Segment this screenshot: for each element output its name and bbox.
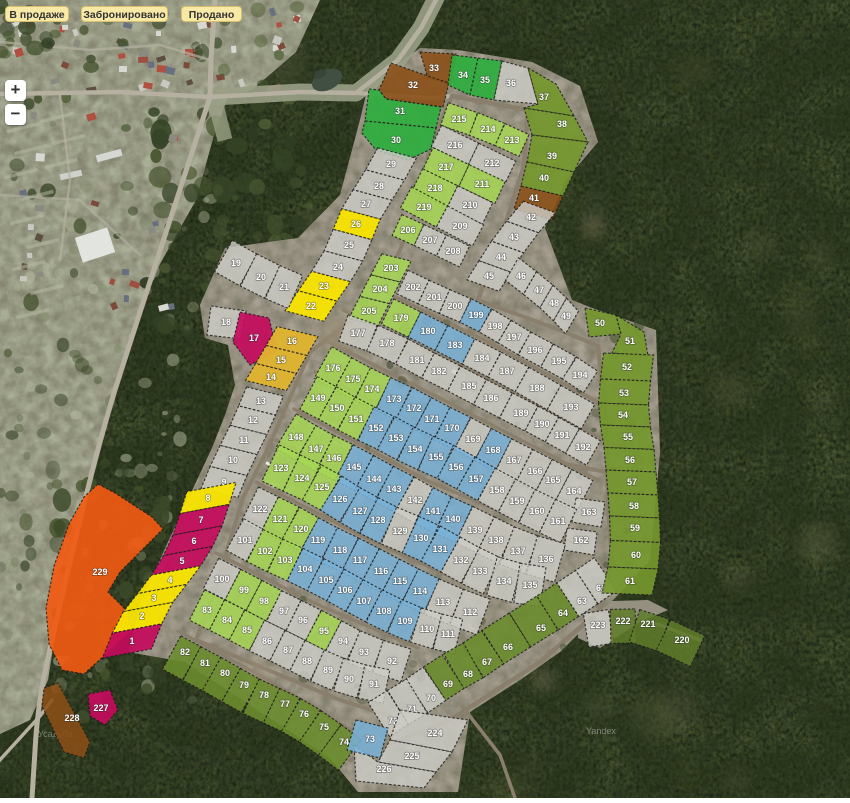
svg-text:51: 51 bbox=[625, 336, 635, 346]
svg-text:209: 209 bbox=[452, 221, 467, 231]
svg-text:74: 74 bbox=[339, 737, 349, 747]
svg-text:144: 144 bbox=[366, 474, 381, 484]
svg-text:30: 30 bbox=[391, 135, 401, 145]
svg-text:183: 183 bbox=[447, 340, 462, 350]
svg-text:92: 92 bbox=[387, 656, 397, 666]
svg-text:122: 122 bbox=[252, 504, 267, 514]
svg-text:223: 223 bbox=[590, 620, 605, 630]
svg-text:73: 73 bbox=[365, 734, 375, 744]
svg-text:49: 49 bbox=[561, 311, 571, 321]
svg-text:94: 94 bbox=[338, 636, 348, 646]
svg-text:28: 28 bbox=[374, 181, 384, 191]
svg-text:139: 139 bbox=[467, 525, 482, 535]
svg-text:134: 134 bbox=[496, 576, 511, 586]
svg-text:191: 191 bbox=[554, 430, 569, 440]
svg-text:53: 53 bbox=[619, 388, 629, 398]
svg-text:212: 212 bbox=[484, 158, 499, 168]
svg-text:172: 172 bbox=[406, 403, 421, 413]
svg-text:176: 176 bbox=[325, 363, 340, 373]
svg-text:17: 17 bbox=[249, 333, 259, 343]
svg-text:127: 127 bbox=[352, 506, 367, 516]
svg-text:165: 165 bbox=[545, 475, 560, 485]
svg-text:77: 77 bbox=[280, 699, 290, 709]
svg-text:98: 98 bbox=[259, 596, 269, 606]
svg-text:69: 69 bbox=[443, 679, 453, 689]
svg-text:110: 110 bbox=[420, 624, 435, 634]
svg-text:164: 164 bbox=[566, 486, 581, 496]
svg-text:214: 214 bbox=[480, 124, 495, 134]
svg-text:131: 131 bbox=[432, 544, 447, 554]
svg-text:6: 6 bbox=[191, 536, 196, 546]
svg-text:168: 168 bbox=[485, 445, 500, 455]
svg-text:152: 152 bbox=[368, 423, 383, 433]
svg-text:136: 136 bbox=[538, 554, 553, 564]
svg-text:203: 203 bbox=[383, 263, 398, 273]
svg-text:21: 21 bbox=[279, 282, 289, 292]
svg-text:99: 99 bbox=[239, 585, 249, 595]
svg-text:133: 133 bbox=[472, 566, 487, 576]
svg-text:75: 75 bbox=[319, 722, 329, 732]
svg-text:128: 128 bbox=[370, 515, 385, 525]
svg-text:219: 219 bbox=[416, 202, 431, 212]
svg-text:80: 80 bbox=[220, 668, 230, 678]
svg-text:129: 129 bbox=[392, 526, 407, 536]
svg-text:18: 18 bbox=[221, 317, 231, 327]
svg-text:37: 37 bbox=[539, 92, 549, 102]
svg-text:188: 188 bbox=[529, 383, 544, 393]
svg-text:39: 39 bbox=[547, 151, 557, 161]
svg-text:34: 34 bbox=[458, 70, 468, 80]
svg-text:58: 58 bbox=[629, 501, 639, 511]
svg-text:100: 100 bbox=[214, 574, 229, 584]
svg-text:15: 15 bbox=[276, 355, 286, 365]
svg-text:211: 211 bbox=[475, 179, 490, 189]
svg-text:178: 178 bbox=[379, 338, 394, 348]
svg-text:197: 197 bbox=[506, 332, 521, 342]
svg-text:153: 153 bbox=[388, 433, 403, 443]
svg-text:175: 175 bbox=[345, 374, 360, 384]
svg-text:54: 54 bbox=[618, 410, 628, 420]
svg-text:184: 184 bbox=[474, 353, 489, 363]
svg-text:23: 23 bbox=[319, 281, 329, 291]
svg-text:215: 215 bbox=[451, 114, 466, 124]
svg-text:156: 156 bbox=[448, 462, 463, 472]
svg-text:169: 169 bbox=[465, 434, 480, 444]
svg-text:76: 76 bbox=[299, 709, 309, 719]
svg-text:208: 208 bbox=[445, 246, 460, 256]
svg-text:121: 121 bbox=[272, 514, 287, 524]
svg-text:43: 43 bbox=[509, 232, 519, 242]
svg-text:185: 185 bbox=[461, 381, 476, 391]
svg-text:222: 222 bbox=[615, 616, 630, 626]
svg-text:123: 123 bbox=[273, 463, 288, 473]
svg-text:132: 132 bbox=[453, 555, 468, 565]
svg-text:95: 95 bbox=[319, 626, 329, 636]
svg-text:138: 138 bbox=[488, 535, 503, 545]
svg-text:104: 104 bbox=[297, 564, 312, 574]
svg-text:224: 224 bbox=[427, 728, 442, 738]
svg-text:111: 111 bbox=[441, 629, 455, 639]
svg-text:179: 179 bbox=[393, 313, 408, 323]
svg-text:106: 106 bbox=[337, 585, 352, 595]
svg-text:162: 162 bbox=[573, 535, 588, 545]
svg-text:93: 93 bbox=[359, 647, 369, 657]
svg-text:24: 24 bbox=[333, 262, 343, 272]
svg-text:228: 228 bbox=[64, 713, 79, 723]
svg-text:186: 186 bbox=[483, 393, 498, 403]
svg-text:109: 109 bbox=[397, 616, 412, 626]
svg-text:85: 85 bbox=[242, 625, 252, 635]
svg-text:116: 116 bbox=[374, 566, 389, 576]
svg-text:182: 182 bbox=[431, 366, 446, 376]
svg-text:114: 114 bbox=[413, 586, 428, 596]
svg-text:181: 181 bbox=[409, 355, 424, 365]
svg-text:213: 213 bbox=[504, 135, 519, 145]
svg-text:90: 90 bbox=[344, 674, 354, 684]
svg-text:159: 159 bbox=[509, 496, 524, 506]
svg-text:207: 207 bbox=[422, 235, 437, 245]
svg-text:229: 229 bbox=[92, 567, 107, 577]
svg-text:14: 14 bbox=[266, 372, 276, 382]
svg-text:220: 220 bbox=[674, 635, 689, 645]
svg-text:218: 218 bbox=[427, 183, 442, 193]
svg-text:187: 187 bbox=[499, 366, 514, 376]
svg-text:59: 59 bbox=[630, 523, 640, 533]
svg-text:60: 60 bbox=[631, 550, 641, 560]
svg-text:8: 8 bbox=[205, 493, 210, 503]
svg-text:204: 204 bbox=[372, 284, 387, 294]
svg-text:190: 190 bbox=[534, 419, 549, 429]
svg-text:50: 50 bbox=[595, 318, 605, 328]
svg-text:16: 16 bbox=[287, 336, 297, 346]
svg-text:2: 2 bbox=[139, 611, 144, 621]
svg-text:210: 210 bbox=[462, 200, 477, 210]
svg-text:154: 154 bbox=[407, 444, 422, 454]
svg-text:67: 67 bbox=[482, 657, 492, 667]
svg-text:198: 198 bbox=[487, 321, 502, 331]
svg-text:200: 200 bbox=[447, 301, 462, 311]
svg-text:66: 66 bbox=[503, 642, 513, 652]
svg-text:206: 206 bbox=[400, 225, 415, 235]
svg-text:221: 221 bbox=[640, 619, 655, 629]
svg-text:84: 84 bbox=[222, 615, 232, 625]
svg-text:174: 174 bbox=[364, 384, 379, 394]
svg-text:148: 148 bbox=[288, 432, 303, 442]
svg-text:7: 7 bbox=[198, 515, 203, 525]
svg-text:5: 5 bbox=[179, 556, 184, 566]
svg-text:177: 177 bbox=[350, 328, 365, 338]
svg-text:13: 13 bbox=[256, 396, 266, 406]
svg-text:205: 205 bbox=[361, 306, 376, 316]
svg-text:4: 4 bbox=[167, 575, 172, 585]
svg-text:216: 216 bbox=[447, 140, 462, 150]
svg-text:89: 89 bbox=[323, 665, 333, 675]
svg-text:32: 32 bbox=[408, 80, 418, 90]
svg-text:3: 3 bbox=[151, 593, 156, 603]
svg-text:135: 135 bbox=[522, 580, 537, 590]
svg-text:Yandex: Yandex bbox=[586, 726, 616, 736]
svg-text:113: 113 bbox=[436, 597, 451, 607]
svg-text:226: 226 bbox=[376, 764, 391, 774]
svg-text:102: 102 bbox=[257, 546, 272, 556]
svg-text:33: 33 bbox=[429, 63, 439, 73]
svg-text:112: 112 bbox=[463, 607, 478, 617]
svg-text:47: 47 bbox=[534, 285, 544, 295]
svg-text:96: 96 bbox=[298, 615, 308, 625]
svg-text:160: 160 bbox=[529, 506, 544, 516]
svg-text:124: 124 bbox=[294, 473, 309, 483]
svg-text:193: 193 bbox=[563, 402, 578, 412]
svg-text:70: 70 bbox=[426, 693, 436, 703]
svg-text:87: 87 bbox=[283, 645, 293, 655]
svg-text:201: 201 bbox=[426, 292, 441, 302]
svg-text:192: 192 bbox=[575, 442, 590, 452]
svg-text:64: 64 bbox=[558, 608, 568, 618]
svg-text:108: 108 bbox=[376, 606, 391, 616]
svg-text:101: 101 bbox=[237, 535, 252, 545]
svg-text:22: 22 bbox=[306, 301, 316, 311]
svg-text:88: 88 bbox=[302, 656, 312, 666]
svg-text:1: 1 bbox=[129, 636, 134, 646]
svg-text:105: 105 bbox=[318, 575, 333, 585]
svg-text:126: 126 bbox=[332, 494, 347, 504]
svg-text:151: 151 bbox=[348, 414, 363, 424]
svg-text:38: 38 bbox=[557, 119, 567, 129]
svg-text:82: 82 bbox=[180, 647, 190, 657]
svg-text:115: 115 bbox=[393, 576, 408, 586]
svg-text:79: 79 bbox=[239, 680, 249, 690]
svg-text:225: 225 bbox=[404, 751, 419, 761]
svg-text:68: 68 bbox=[463, 669, 473, 679]
svg-text:137: 137 bbox=[510, 546, 525, 556]
svg-text:149: 149 bbox=[310, 393, 325, 403]
svg-text:142: 142 bbox=[407, 495, 422, 505]
svg-text:25: 25 bbox=[344, 240, 354, 250]
svg-text:117: 117 bbox=[353, 555, 368, 565]
svg-text:97: 97 bbox=[279, 606, 289, 616]
svg-text:55: 55 bbox=[623, 432, 633, 442]
svg-text:86: 86 bbox=[262, 636, 272, 646]
svg-text:196: 196 bbox=[527, 345, 542, 355]
svg-text:27: 27 bbox=[361, 199, 371, 209]
svg-text:40: 40 bbox=[539, 173, 549, 183]
svg-text:166: 166 bbox=[527, 466, 542, 476]
svg-text:227: 227 bbox=[93, 703, 108, 713]
svg-text:46: 46 bbox=[516, 271, 526, 281]
svg-text:157: 157 bbox=[468, 474, 483, 484]
svg-text:12: 12 bbox=[248, 415, 258, 425]
svg-text:45: 45 bbox=[484, 271, 494, 281]
svg-text:217: 217 bbox=[438, 162, 453, 172]
svg-text:155: 155 bbox=[428, 452, 443, 462]
svg-text:57: 57 bbox=[627, 477, 637, 487]
svg-text:161: 161 bbox=[550, 516, 565, 526]
svg-text:56: 56 bbox=[625, 455, 635, 465]
svg-text:91: 91 bbox=[369, 679, 379, 689]
svg-text:171: 171 bbox=[424, 414, 439, 424]
svg-text:194: 194 bbox=[572, 370, 587, 380]
svg-text:83: 83 bbox=[202, 605, 212, 615]
svg-text:145: 145 bbox=[346, 462, 361, 472]
svg-text:150: 150 bbox=[329, 403, 344, 413]
svg-text:107: 107 bbox=[356, 596, 371, 606]
svg-text:20: 20 bbox=[256, 272, 266, 282]
svg-text:195: 195 bbox=[551, 356, 566, 366]
svg-text:120: 120 bbox=[293, 524, 308, 534]
svg-text:163: 163 bbox=[581, 507, 596, 517]
svg-text:10: 10 bbox=[228, 455, 238, 465]
svg-text:189: 189 bbox=[513, 408, 528, 418]
svg-text:35: 35 bbox=[480, 75, 490, 85]
svg-text:143: 143 bbox=[386, 484, 401, 494]
svg-text:41: 41 bbox=[529, 193, 539, 203]
svg-text:26: 26 bbox=[351, 219, 361, 229]
svg-text:103: 103 bbox=[277, 555, 292, 565]
svg-text:199: 199 bbox=[468, 310, 483, 320]
svg-text:63: 63 bbox=[577, 596, 587, 606]
svg-text:65: 65 bbox=[536, 623, 546, 633]
svg-text:202: 202 bbox=[405, 282, 420, 292]
svg-text:130: 130 bbox=[413, 533, 428, 543]
svg-text:44: 44 bbox=[496, 252, 506, 262]
svg-text:180: 180 bbox=[420, 326, 435, 336]
svg-text:19: 19 bbox=[231, 258, 241, 268]
svg-text:173: 173 bbox=[386, 394, 401, 404]
svg-text:119: 119 bbox=[311, 535, 326, 545]
svg-text:141: 141 bbox=[425, 506, 440, 516]
svg-text:36: 36 bbox=[506, 78, 516, 88]
svg-text:31: 31 bbox=[395, 106, 405, 116]
svg-text:158: 158 bbox=[489, 485, 504, 495]
svg-text:11: 11 bbox=[239, 435, 249, 445]
svg-text:147: 147 bbox=[308, 444, 323, 454]
svg-text:61: 61 bbox=[625, 576, 635, 586]
svg-text:29: 29 bbox=[386, 159, 396, 169]
svg-text:42: 42 bbox=[526, 212, 536, 222]
svg-text:125: 125 bbox=[314, 482, 329, 492]
svg-text:81: 81 bbox=[200, 658, 210, 668]
svg-text:118: 118 bbox=[333, 545, 348, 555]
svg-text:140: 140 bbox=[445, 514, 460, 524]
svg-text:146: 146 bbox=[326, 453, 341, 463]
svg-text:167: 167 bbox=[506, 455, 521, 465]
svg-text:52: 52 bbox=[622, 362, 632, 372]
svg-text:48: 48 bbox=[549, 298, 559, 308]
svg-text:78: 78 bbox=[259, 690, 269, 700]
svg-text:170: 170 bbox=[444, 423, 459, 433]
